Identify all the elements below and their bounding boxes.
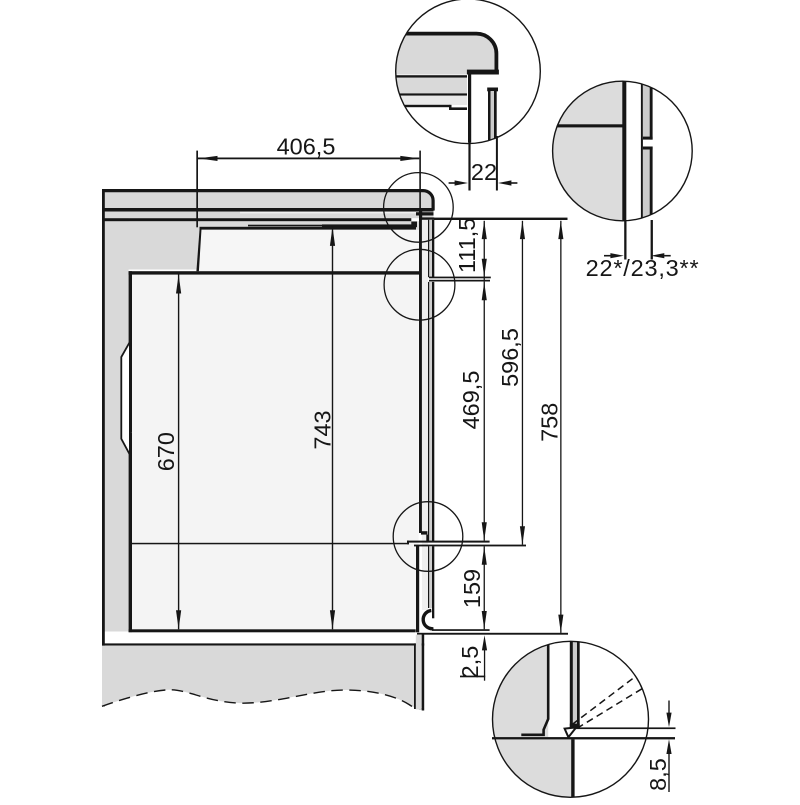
svg-text:22*/23,3**: 22*/23,3** <box>586 255 700 281</box>
svg-text:22: 22 <box>471 159 497 185</box>
svg-text:743: 743 <box>310 410 336 449</box>
svg-text:596,5: 596,5 <box>497 328 523 387</box>
svg-text:758: 758 <box>536 403 562 442</box>
svg-text:2,5: 2,5 <box>457 646 483 679</box>
svg-text:111,5: 111,5 <box>454 218 480 273</box>
svg-text:670: 670 <box>153 432 179 471</box>
svg-text:406,5: 406,5 <box>277 134 336 160</box>
svg-text:159: 159 <box>459 569 485 608</box>
svg-text:469,5: 469,5 <box>458 371 484 430</box>
svg-text:8,5: 8,5 <box>645 758 671 791</box>
